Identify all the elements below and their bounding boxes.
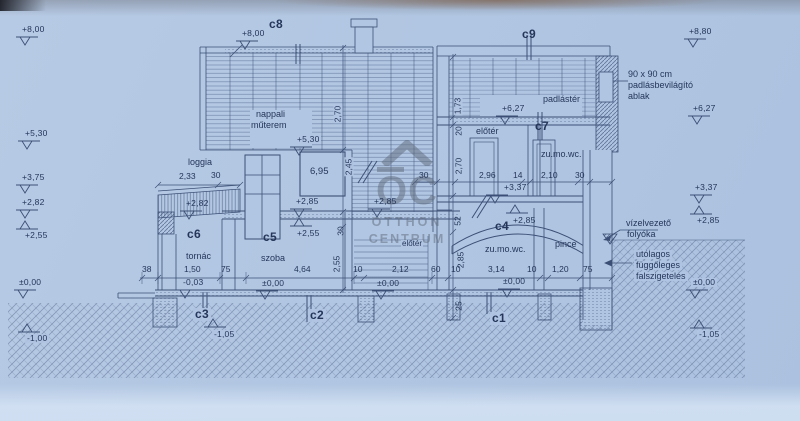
dim-label: 1,50: [184, 265, 201, 274]
dim-label-vertical: 25: [455, 301, 464, 310]
watermark-house-icon: [381, 140, 433, 166]
annotation-wall-insulation: falszigetelés: [634, 272, 688, 281]
room-label-tornac: tornác: [186, 252, 211, 261]
dim-label: 14: [513, 171, 522, 180]
level-text: +2,85: [296, 197, 319, 206]
level-text: +2,85: [374, 197, 397, 206]
level-text: +2,55: [297, 229, 320, 238]
dim-label: 2,12: [392, 265, 409, 274]
level-text: -1,05: [212, 330, 236, 339]
level-text: -0,03: [183, 278, 203, 287]
level-text: +2,85: [513, 216, 536, 225]
dim-label: 2,10: [541, 171, 558, 180]
section-label-c5: c5: [263, 231, 277, 244]
room-label-eloter-upper: előtér: [476, 127, 499, 136]
section-label-c4: c4: [495, 220, 509, 233]
level-text: ±0,00: [691, 278, 717, 287]
annotation-attic-window: padlásbevilágító: [628, 81, 693, 90]
dim-label: 1,20: [552, 265, 569, 274]
annotation-drain: folyóka: [627, 230, 656, 239]
dim-label-vertical: 2,85: [457, 252, 466, 269]
level-text: ±0,00: [377, 279, 399, 288]
dim-label-skylight: 6,95: [310, 167, 329, 177]
section-label-c3: c3: [193, 308, 211, 321]
annotation-wall-insulation: függőleges: [634, 261, 682, 270]
dim-label: 3,14: [488, 265, 505, 274]
level-text: +8,00: [22, 25, 45, 34]
dim-label: 10: [527, 265, 536, 274]
right-building: [437, 35, 618, 330]
level-text: ±0,00: [503, 277, 525, 286]
room-label-muterem: műterem: [251, 121, 287, 130]
level-text: +2,82: [186, 199, 209, 208]
section-label-c6: c6: [187, 228, 201, 241]
dim-label: 2,96: [479, 171, 496, 180]
room-label-padlaster: padlástér: [543, 95, 580, 104]
level-text: -1,00: [25, 334, 49, 343]
level-text: +3,75: [22, 173, 45, 182]
dim-label-vertical: 30: [337, 226, 346, 235]
level-text: ±0,00: [19, 278, 41, 287]
dim-label-vertical: 1,73: [454, 97, 463, 116]
dim-label: 30: [575, 171, 584, 180]
level-text: +6,27: [693, 104, 716, 113]
dim-label: 75: [583, 265, 592, 274]
dim-label: 30: [419, 171, 428, 180]
level-text: +5,30: [296, 135, 321, 144]
level-text: -1,05: [697, 330, 721, 339]
level-text: +2,55: [25, 231, 48, 240]
dim-label-vertical: 2,70: [455, 158, 464, 175]
dim-label-vertical: 20: [455, 126, 464, 135]
dim-label: 2,33: [179, 172, 196, 181]
level-text: +8,80: [689, 27, 712, 36]
dim-label: 38: [142, 265, 151, 274]
level-text: +3,37: [695, 183, 718, 192]
dim-label: 30: [211, 171, 220, 180]
section-label-c8: c8: [269, 18, 283, 31]
room-label-nappali: nappali: [256, 110, 285, 119]
dim-label: 75: [221, 265, 230, 274]
dim-label-vertical: 2,45: [345, 158, 354, 177]
level-text: +3,37: [504, 183, 527, 192]
level-text: +2,82: [22, 198, 45, 207]
otthon-centrum-watermark: OC OTTHON CENTRUM: [352, 140, 462, 246]
room-label-zumowc-lower: zu.mo.wc.: [485, 245, 526, 254]
dim-label-vertical: 52: [454, 216, 463, 225]
level-text: +2,85: [697, 216, 720, 225]
level-text: +5,30: [25, 129, 48, 138]
section-label-c7: c7: [535, 120, 549, 133]
section-label-c9: c9: [522, 28, 536, 41]
room-label-szoba: szoba: [261, 254, 285, 263]
annotation-attic-window: ablak: [628, 92, 650, 101]
annotation-wall-insulation: utólagos: [634, 250, 672, 259]
room-label-zumowc-upper: zu.mo.wc.: [541, 150, 582, 159]
dim-label: 60: [431, 265, 440, 274]
room-label-pince: pince: [555, 240, 577, 249]
blueprint-photo: OC OTTHON CENTRUM +8,00 +5,30 +3,75 +2,8…: [0, 0, 800, 421]
dim-label-vertical: 2,55: [333, 256, 342, 273]
dim-label: 10: [353, 265, 362, 274]
annotation-attic-window: 90 x 90 cm: [628, 70, 672, 79]
level-text: ±0,00: [262, 279, 284, 288]
section-label-c1: c1: [490, 312, 508, 325]
annotation-drain: vízelvezető: [626, 219, 671, 228]
section-label-c2: c2: [308, 309, 326, 322]
room-label-loggia: loggia: [188, 158, 212, 167]
level-text: +6,27: [501, 104, 526, 113]
watermark-line1: OTTHON: [352, 215, 462, 229]
dim-label: 4,64: [294, 265, 311, 274]
level-text: +8,00: [242, 29, 265, 38]
room-label-eloter-ground: előtér: [401, 240, 423, 248]
dim-label-vertical: 2,70: [334, 105, 343, 124]
